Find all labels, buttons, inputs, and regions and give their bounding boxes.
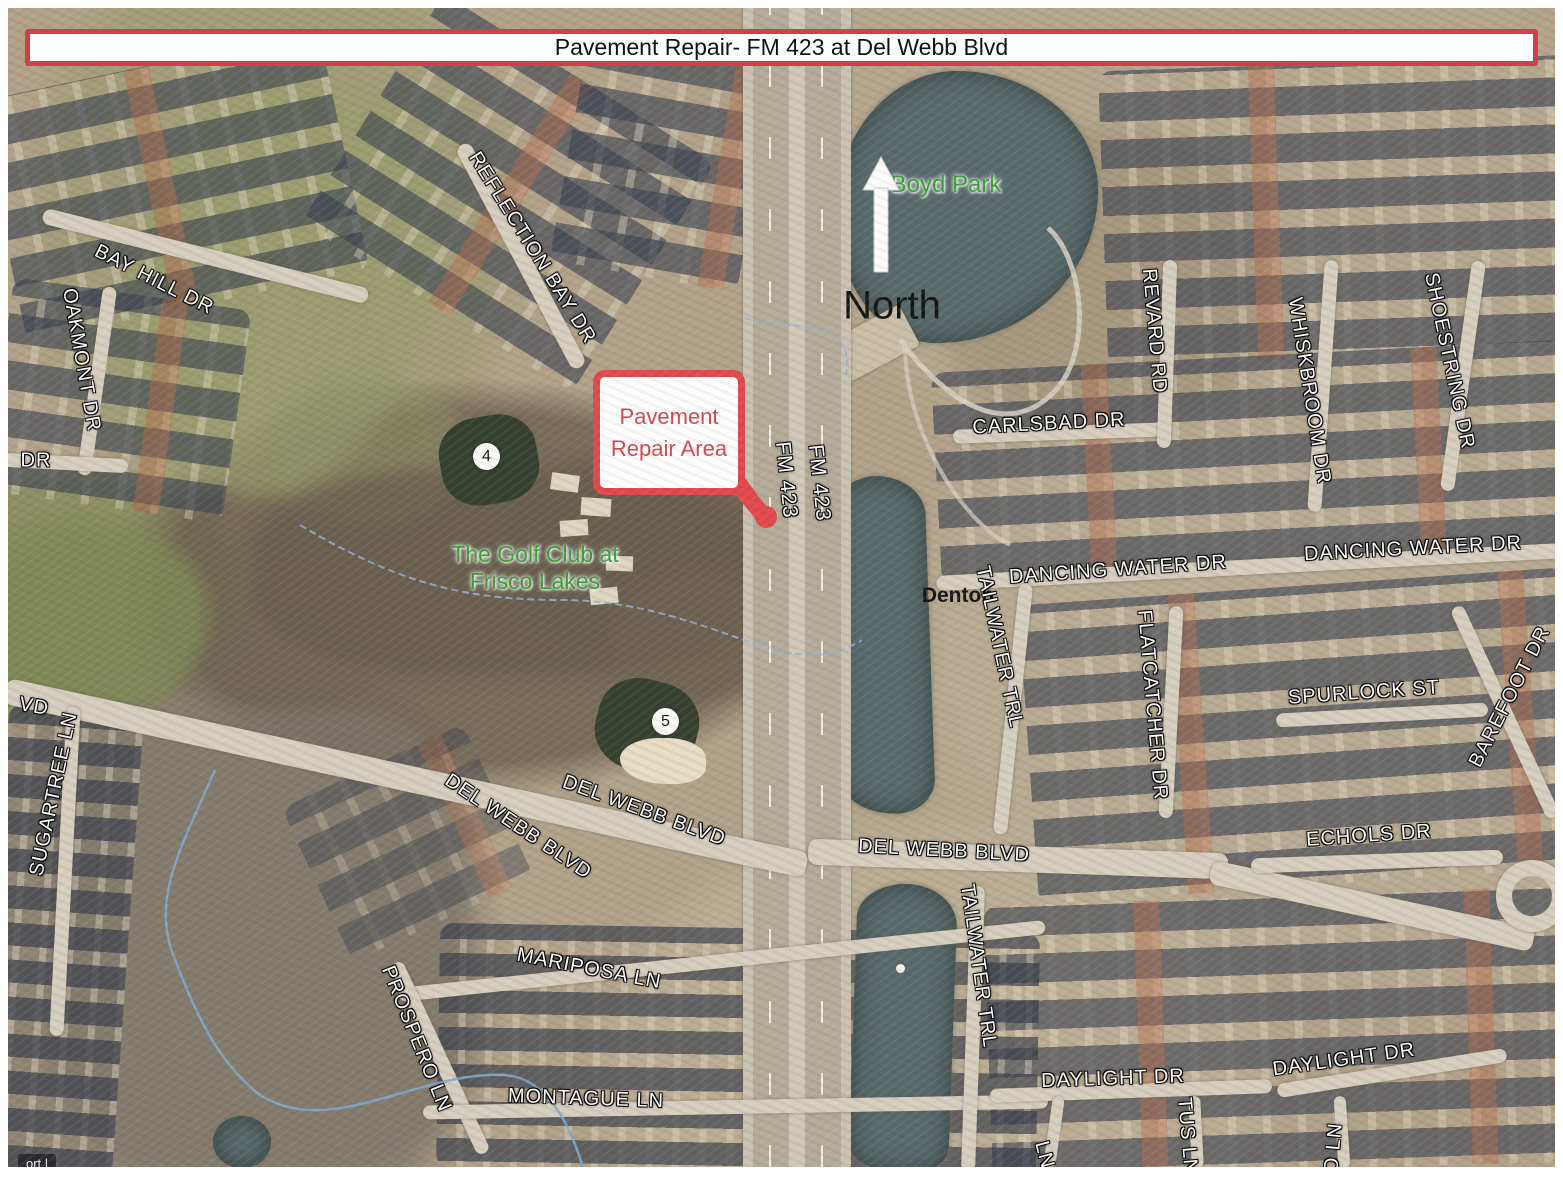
attribution-badge: ort | [18, 1154, 56, 1167]
callout-line1: Pavement [619, 401, 718, 433]
street-label: DR [21, 450, 52, 473]
north-label: North [843, 284, 941, 329]
fm423-highway [743, 8, 851, 1167]
golf-club-label-line2: Frisco Lakes [451, 568, 618, 595]
street-label: VD [17, 693, 50, 721]
aerial-map: Boyd Park The Golf Club at Frisco Lakes … [8, 8, 1555, 1167]
golf-hole-5-marker: 5 [652, 708, 679, 735]
golf-sand-bunker [620, 738, 706, 784]
golf-hole-4-marker: 4 [473, 443, 500, 470]
golf-hole-number: 5 [661, 713, 670, 731]
golf-club-label: The Golf Club at Frisco Lakes [451, 541, 618, 595]
pavement-repair-callout: Pavement Repair Area [593, 370, 745, 495]
map-figure: Boyd Park The Golf Club at Frisco Lakes … [0, 0, 1563, 1181]
boyd-park-label: Boyd Park [891, 171, 1002, 199]
building-pad [559, 519, 588, 537]
title-banner: Pavement Repair- FM 423 at Del Webb Blvd [25, 29, 1538, 66]
golf-hole-number: 4 [482, 448, 491, 466]
lane-stripes [821, 8, 823, 1167]
pond [213, 1116, 271, 1167]
golf-club-label-line1: The Golf Club at [451, 541, 618, 568]
page-title: Pavement Repair- FM 423 at Del Webb Blvd [555, 34, 1008, 61]
lane-stripes [769, 8, 771, 1167]
pond [848, 882, 958, 1167]
building-pad [580, 497, 611, 517]
fountain-dot [896, 964, 905, 973]
street-label: O LN [1320, 1122, 1347, 1167]
callout-line2: Repair Area [611, 433, 727, 465]
neighborhood-houses [8, 277, 252, 523]
